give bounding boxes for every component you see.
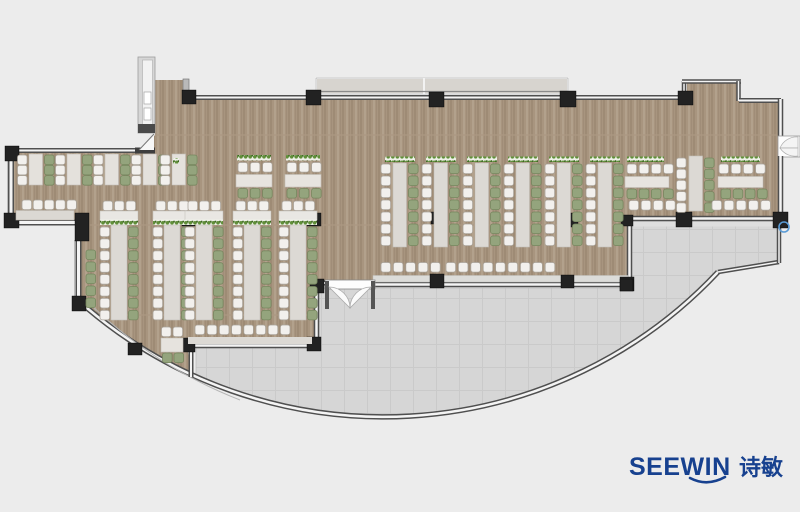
svg-text:诗敏: 诗敏 [739, 455, 783, 480]
svg-text:SEEWIN: SEEWIN [629, 453, 731, 481]
